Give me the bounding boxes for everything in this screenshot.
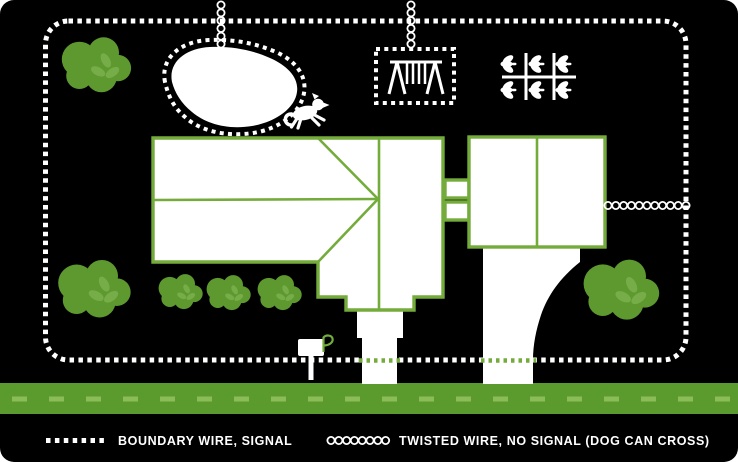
legend-twisted-wire-sample: [327, 437, 389, 444]
sprout-icon: [529, 79, 545, 100]
mailbox-box: [298, 339, 324, 356]
legend-boundary-label: BOUNDARY WIRE, SIGNAL: [118, 434, 292, 448]
mailbox-post: [309, 355, 314, 380]
bush-bottom-left: [58, 260, 130, 318]
house: [153, 138, 443, 310]
yard-fence-diagram: BOUNDARY WIRE, SIGNAL TWISTED WIRE, NO S…: [0, 0, 738, 462]
sprout-icon: [529, 53, 545, 74]
bush-small-1: [159, 274, 203, 309]
pool-water: [171, 47, 297, 127]
road: [0, 383, 738, 414]
bush-top-left: [62, 37, 131, 92]
bush-small-2: [207, 275, 251, 310]
twisted-wire-pool: [217, 1, 224, 47]
sprout-icon: [556, 53, 572, 74]
front-stoop: [357, 308, 403, 338]
sprout-icon: [501, 53, 517, 74]
legend-twisted-label: TWISTED WIRE, NO SIGNAL (DOG CAN CROSS): [399, 434, 710, 448]
breezeway-box-1: [445, 180, 469, 198]
swing-exclusion-wire: [376, 49, 454, 103]
pool: [164, 40, 304, 134]
sprout-icon: [556, 79, 572, 100]
diagram-canvas: BOUNDARY WIRE, SIGNAL TWISTED WIRE, NO S…: [0, 0, 738, 462]
bush-bottom-right: [584, 260, 660, 320]
house-footprint: [153, 138, 443, 310]
garden: [501, 53, 577, 101]
mailbox-flag-icon: [324, 336, 333, 352]
twisted-wire-swing: [407, 1, 414, 47]
legend: BOUNDARY WIRE, SIGNAL TWISTED WIRE, NO S…: [46, 434, 710, 448]
driveway: [483, 246, 580, 384]
garage: [445, 137, 605, 247]
swing-set-zone: [376, 49, 454, 103]
twisted-wire-garage: [604, 202, 689, 209]
bush-small-3: [258, 275, 302, 310]
sprout-icon: [501, 79, 517, 100]
breezeway-box-2: [445, 202, 469, 220]
swing-set-icon: [389, 62, 443, 94]
